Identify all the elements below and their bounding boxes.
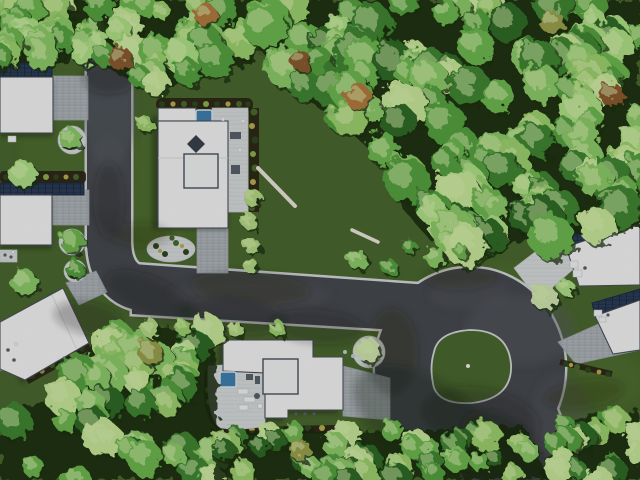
scene-svg (0, 0, 640, 480)
photo-grain (0, 0, 640, 480)
aerial-photo (0, 0, 640, 480)
